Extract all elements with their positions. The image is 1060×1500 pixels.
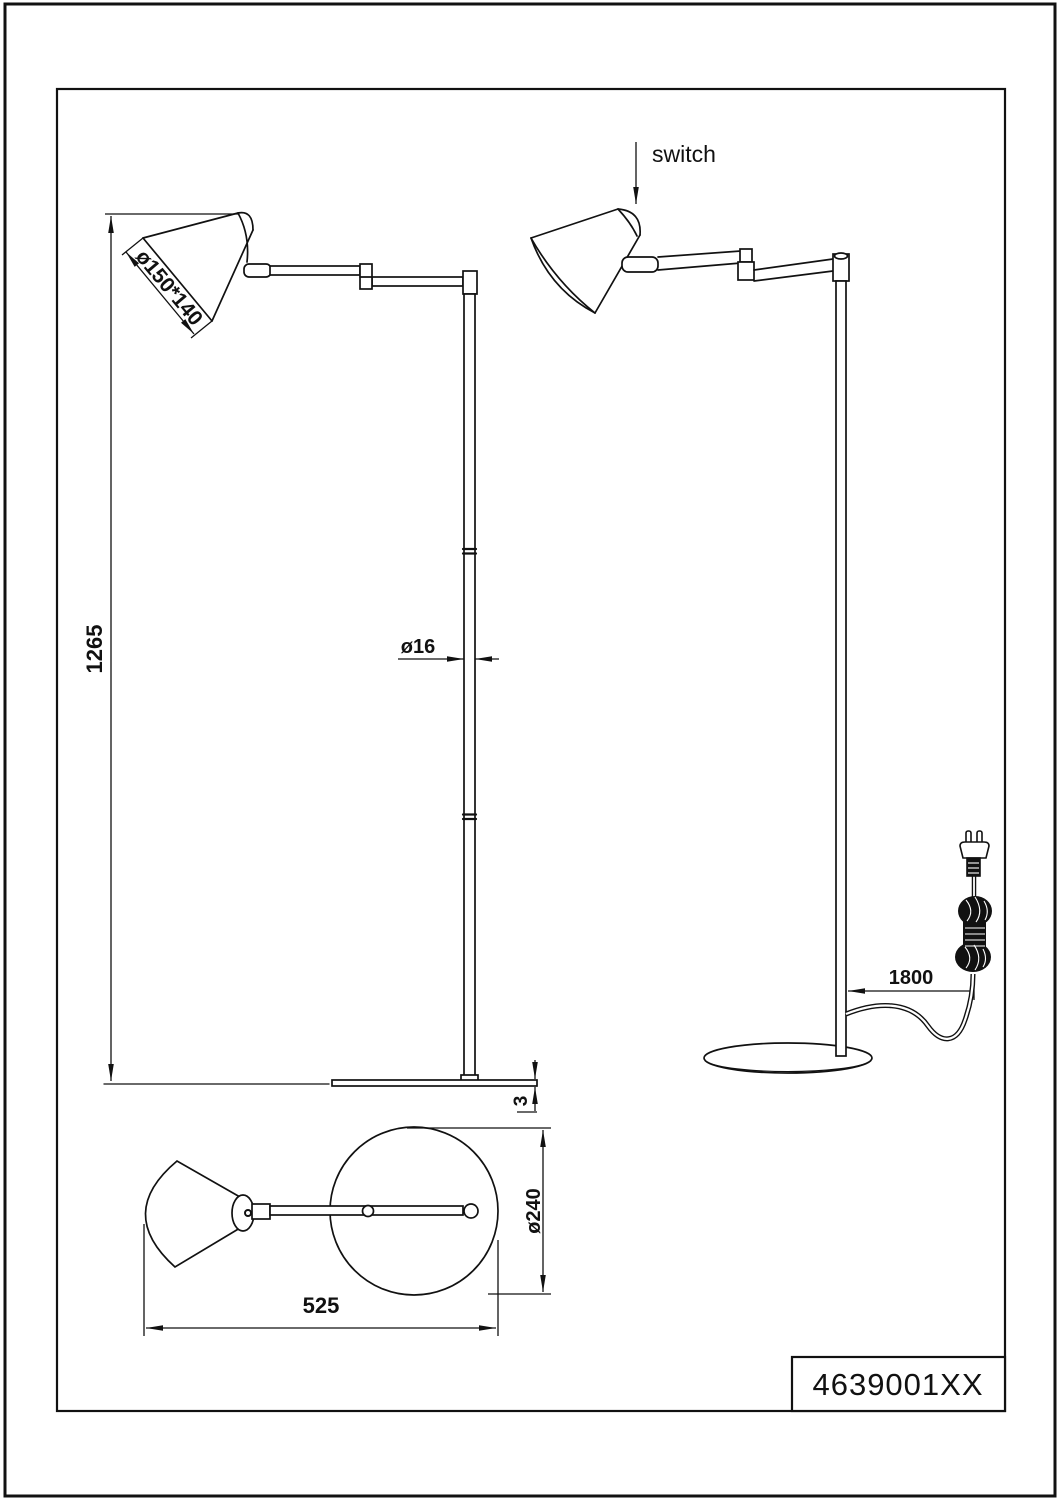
lamp-technical-drawing: 1265 ø150*140 ø16 3 switch 1800 ø240 525…	[0, 0, 1060, 1500]
shade-rim-front	[531, 238, 595, 313]
shade-right-edge	[595, 235, 640, 313]
shade-top-edge	[143, 213, 238, 238]
pole	[464, 294, 475, 1081]
pole	[836, 281, 846, 1056]
elbow-top	[740, 249, 752, 262]
part-number: 4639001XX	[812, 1367, 983, 1402]
lamp-socket	[244, 264, 271, 277]
pole-top-joint	[463, 271, 477, 294]
socket-top	[252, 1204, 270, 1219]
shade-dimension-label: ø150*140	[131, 246, 207, 331]
power-plug	[960, 831, 989, 876]
shade-top-outline	[145, 1161, 240, 1267]
shade-seam	[618, 209, 637, 236]
shade-dome	[238, 213, 253, 230]
base-thickness-label: 3	[511, 1096, 532, 1107]
front-view	[104, 213, 537, 1086]
lamp-socket	[622, 257, 658, 272]
shade-rim-back	[531, 238, 595, 313]
switch-label: switch	[652, 141, 716, 167]
cord-length-label: 1800	[889, 967, 934, 989]
upper-arm	[270, 266, 360, 275]
page-borders	[5, 4, 1055, 1496]
base-plate	[332, 1080, 537, 1086]
side-swing-arm	[622, 249, 849, 281]
plug-body	[960, 842, 989, 858]
pole-joint-cap	[835, 253, 848, 259]
upper-arm	[658, 251, 741, 270]
lower-arm	[372, 277, 463, 286]
cable-coil	[955, 896, 992, 972]
front-pole	[461, 294, 478, 1081]
power-cord-assembly	[846, 831, 992, 1039]
pole-top-circle	[464, 1204, 478, 1218]
text-labels: 1265 ø150*140 ø16 3 switch 1800 ø240 525…	[82, 141, 984, 1402]
overall-width-label: 525	[303, 1293, 340, 1318]
top-view	[145, 1127, 498, 1295]
height-dimension-label: 1265	[82, 625, 107, 674]
front-swing-arm	[244, 264, 477, 294]
elbow-joint	[738, 262, 754, 280]
outer-border	[5, 4, 1055, 1496]
technical-drawing-page: 1265 ø150*140 ø16 3 switch 1800 ø240 525…	[0, 0, 1060, 1500]
pole-diameter-label: ø16	[401, 636, 435, 658]
shade-top-edge	[531, 209, 618, 238]
lower-arm	[754, 259, 833, 281]
elbow-pivot-top	[363, 1206, 374, 1217]
side-view	[531, 209, 872, 1073]
base-diameter-label: ø240	[523, 1188, 545, 1234]
